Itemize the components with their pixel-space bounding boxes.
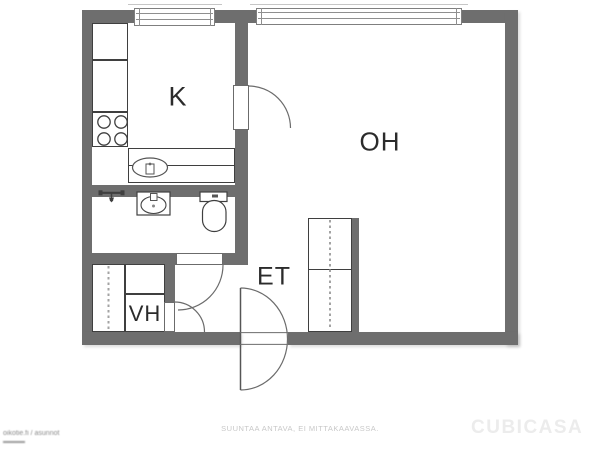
washbasin-icon <box>137 192 170 215</box>
kitchen-door-arc <box>249 86 291 128</box>
room-label-closet: VH <box>129 301 162 327</box>
kitchen-sink-icon <box>133 158 168 177</box>
shower-icon <box>99 190 125 202</box>
disclaimer-text: SUUNTAA ANTAVA, EI MITTAKAAVASSA. <box>221 424 379 433</box>
room-label-living-room: OH <box>360 127 401 158</box>
closet-door-arc <box>175 302 205 332</box>
site-watermark: oikotie.fi / asunnot <box>3 430 59 437</box>
room-label-entry: ET <box>257 263 291 292</box>
site-watermark-subline <box>3 441 25 443</box>
toilet-icon <box>200 192 227 232</box>
floorplan-canvas: K OH ET VH SUUNTAA ANTAVA, EI MITTAKAAVA… <box>0 0 600 450</box>
brand-watermark: CUBICASA <box>471 417 583 439</box>
room-label-kitchen: K <box>168 82 187 113</box>
stove-burners-icon <box>98 116 127 145</box>
entrance-door-arc <box>241 288 288 390</box>
fixture-and-door-overlay <box>0 0 600 450</box>
